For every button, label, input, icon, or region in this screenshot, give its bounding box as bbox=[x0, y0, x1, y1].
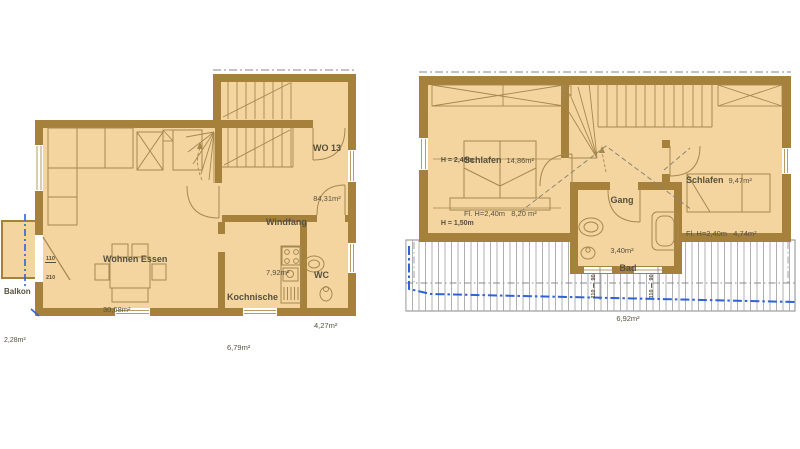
label-wc: WC 4,27m² bbox=[314, 230, 337, 351]
label-schlafen-left: Schlafen14,86m² Fl. H=2,40m 8,20 m² bbox=[464, 109, 537, 238]
label-window-dim-right: 11090 bbox=[642, 273, 656, 303]
label-schlafen-right: Schlafen9,47m² Fl. H=2,40m 4,74m² bbox=[686, 129, 757, 258]
label-kochnische: Kochnische 6,79m² bbox=[227, 252, 278, 373]
label-balkon: Balkon 2,28m² bbox=[4, 247, 31, 366]
label-balcony-door-dimension: 110 210 bbox=[45, 244, 56, 287]
label-height-150: H = 1,50m bbox=[437, 211, 474, 229]
floor-plan-page: WO 13 84,31m² Windfang 7,92m² Wohnen Ess… bbox=[0, 0, 800, 449]
label-window-dim-left: 11090 bbox=[584, 273, 598, 303]
label-wohnen-essen: Wohnen Essen 30,68m² bbox=[103, 214, 167, 335]
label-unit-wo13: WO 13 84,31m² bbox=[303, 103, 351, 224]
balcony-door-opening bbox=[35, 235, 43, 282]
label-height-240: H = 2,40m bbox=[437, 148, 474, 166]
